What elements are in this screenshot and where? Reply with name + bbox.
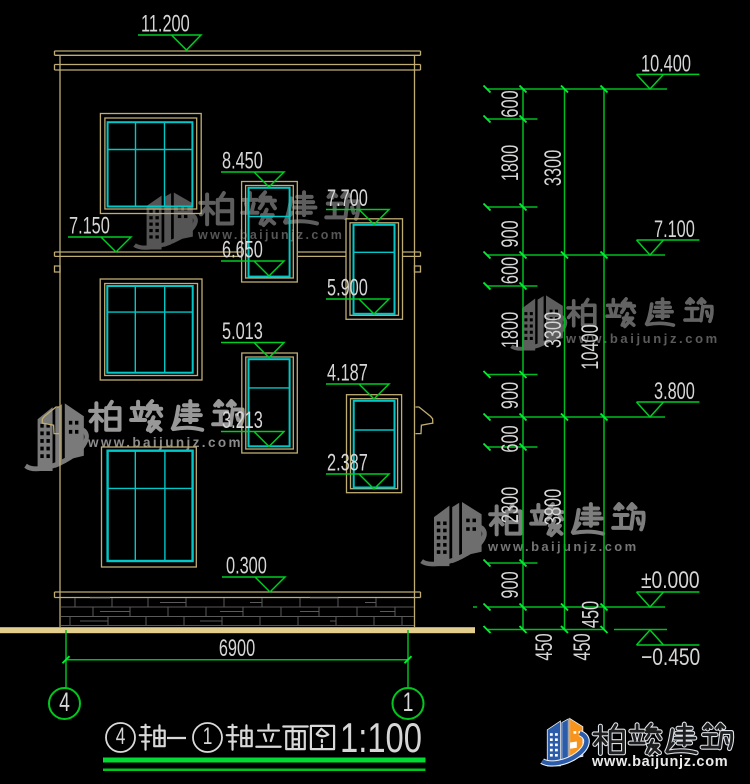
- svg-text:0.300: 0.300: [226, 552, 267, 579]
- svg-text:4: 4: [59, 687, 70, 717]
- svg-text:1:100: 1:100: [340, 714, 422, 761]
- svg-text:450: 450: [531, 633, 558, 660]
- svg-text:www.baijunjz.com: www.baijunjz.com: [87, 435, 243, 450]
- svg-text:10400: 10400: [577, 324, 604, 369]
- svg-text:6.650: 6.650: [222, 236, 263, 263]
- svg-text:6900: 6900: [219, 635, 255, 662]
- svg-text:3300: 3300: [540, 150, 567, 186]
- svg-text:3.213: 3.213: [222, 407, 263, 434]
- svg-text:7.700: 7.700: [327, 185, 368, 212]
- svg-text:2300: 2300: [497, 487, 524, 523]
- svg-text:10.400: 10.400: [641, 50, 691, 77]
- svg-text:7.150: 7.150: [69, 212, 110, 239]
- svg-text:4.187: 4.187: [327, 359, 368, 386]
- svg-text:1: 1: [403, 687, 414, 717]
- svg-text:1800: 1800: [497, 145, 524, 181]
- svg-text:11.200: 11.200: [141, 10, 190, 37]
- svg-text:−0.450: −0.450: [641, 643, 700, 671]
- svg-text:600: 600: [497, 425, 524, 452]
- svg-text:900: 900: [497, 382, 524, 409]
- svg-text:www.baijunjz.com: www.baijunjz.com: [591, 754, 728, 770]
- svg-text:3.800: 3.800: [654, 378, 695, 405]
- svg-text:www.baijunjz.com: www.baijunjz.com: [487, 539, 639, 554]
- svg-text:3300: 3300: [540, 312, 567, 348]
- svg-text:www.baijunjz.com: www.baijunjz.com: [197, 228, 344, 242]
- svg-text:8.450: 8.450: [222, 147, 263, 174]
- svg-text:450: 450: [577, 601, 604, 628]
- svg-text:1800: 1800: [497, 312, 524, 348]
- svg-text:7.100: 7.100: [654, 216, 695, 243]
- svg-text:3800: 3800: [540, 489, 567, 525]
- svg-text:900: 900: [497, 220, 524, 247]
- svg-text:900: 900: [497, 571, 524, 598]
- svg-text:600: 600: [497, 90, 524, 117]
- svg-text:600: 600: [497, 257, 524, 284]
- svg-text:±0.000: ±0.000: [641, 566, 700, 594]
- svg-text:5.013: 5.013: [222, 318, 263, 345]
- svg-text:2.387: 2.387: [327, 449, 368, 476]
- svg-text:1: 1: [203, 723, 213, 749]
- svg-text:5.900: 5.900: [327, 274, 368, 301]
- svg-text:450: 450: [569, 633, 596, 660]
- svg-text:4: 4: [116, 723, 126, 749]
